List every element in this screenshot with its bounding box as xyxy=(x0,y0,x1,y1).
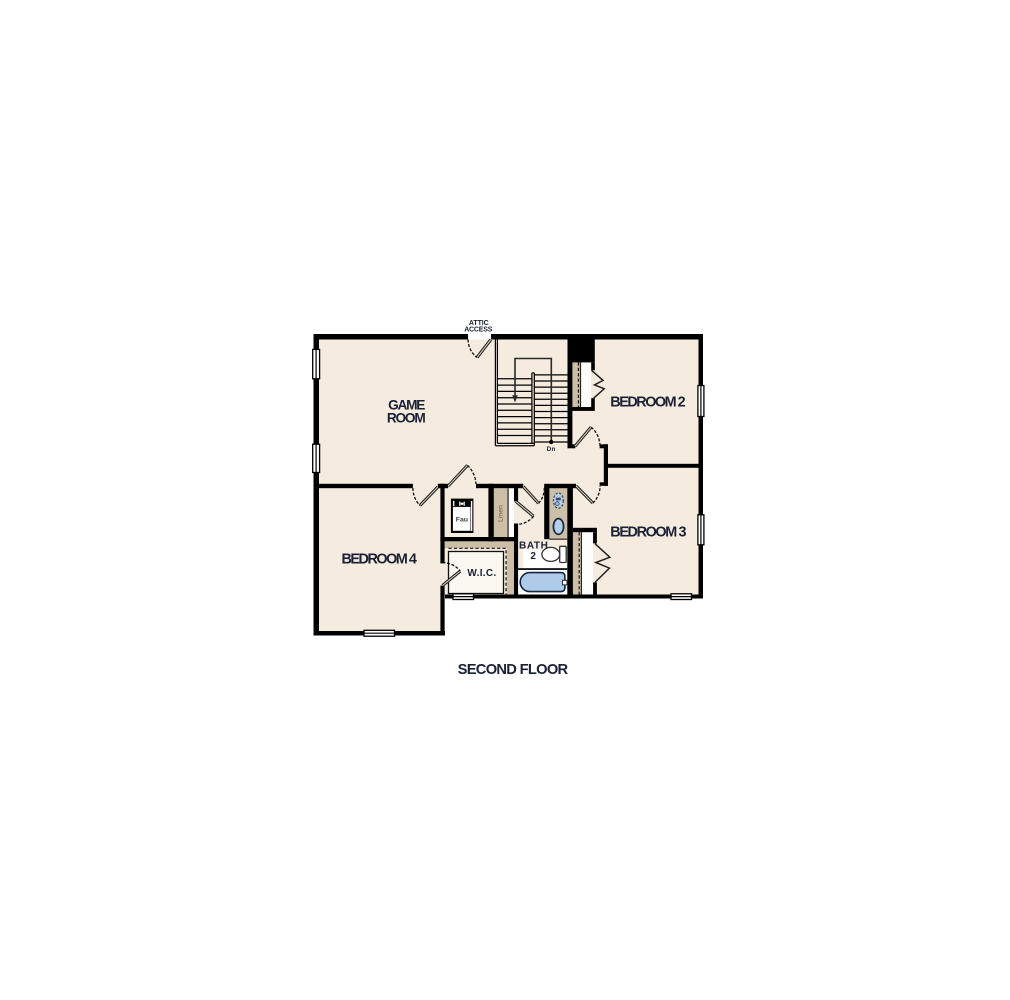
svg-text:BEDROOM 3: BEDROOM 3 xyxy=(610,525,686,541)
svg-text:Dn: Dn xyxy=(547,446,556,453)
svg-text:ROOM: ROOM xyxy=(387,411,426,426)
svg-text:BATH: BATH xyxy=(519,540,548,551)
svg-text:Linen: Linen xyxy=(498,505,505,522)
svg-text:Fau: Fau xyxy=(456,517,468,524)
svg-text:BEDROOM 4: BEDROOM 4 xyxy=(341,552,417,568)
svg-text:SECOND FLOOR: SECOND FLOOR xyxy=(458,662,569,678)
svg-text:BEDROOM 2: BEDROOM 2 xyxy=(610,395,685,411)
svg-text:W.I.C.: W.I.C. xyxy=(467,568,496,579)
svg-text:2: 2 xyxy=(530,551,536,562)
svg-text:ACCESS: ACCESS xyxy=(464,327,493,334)
